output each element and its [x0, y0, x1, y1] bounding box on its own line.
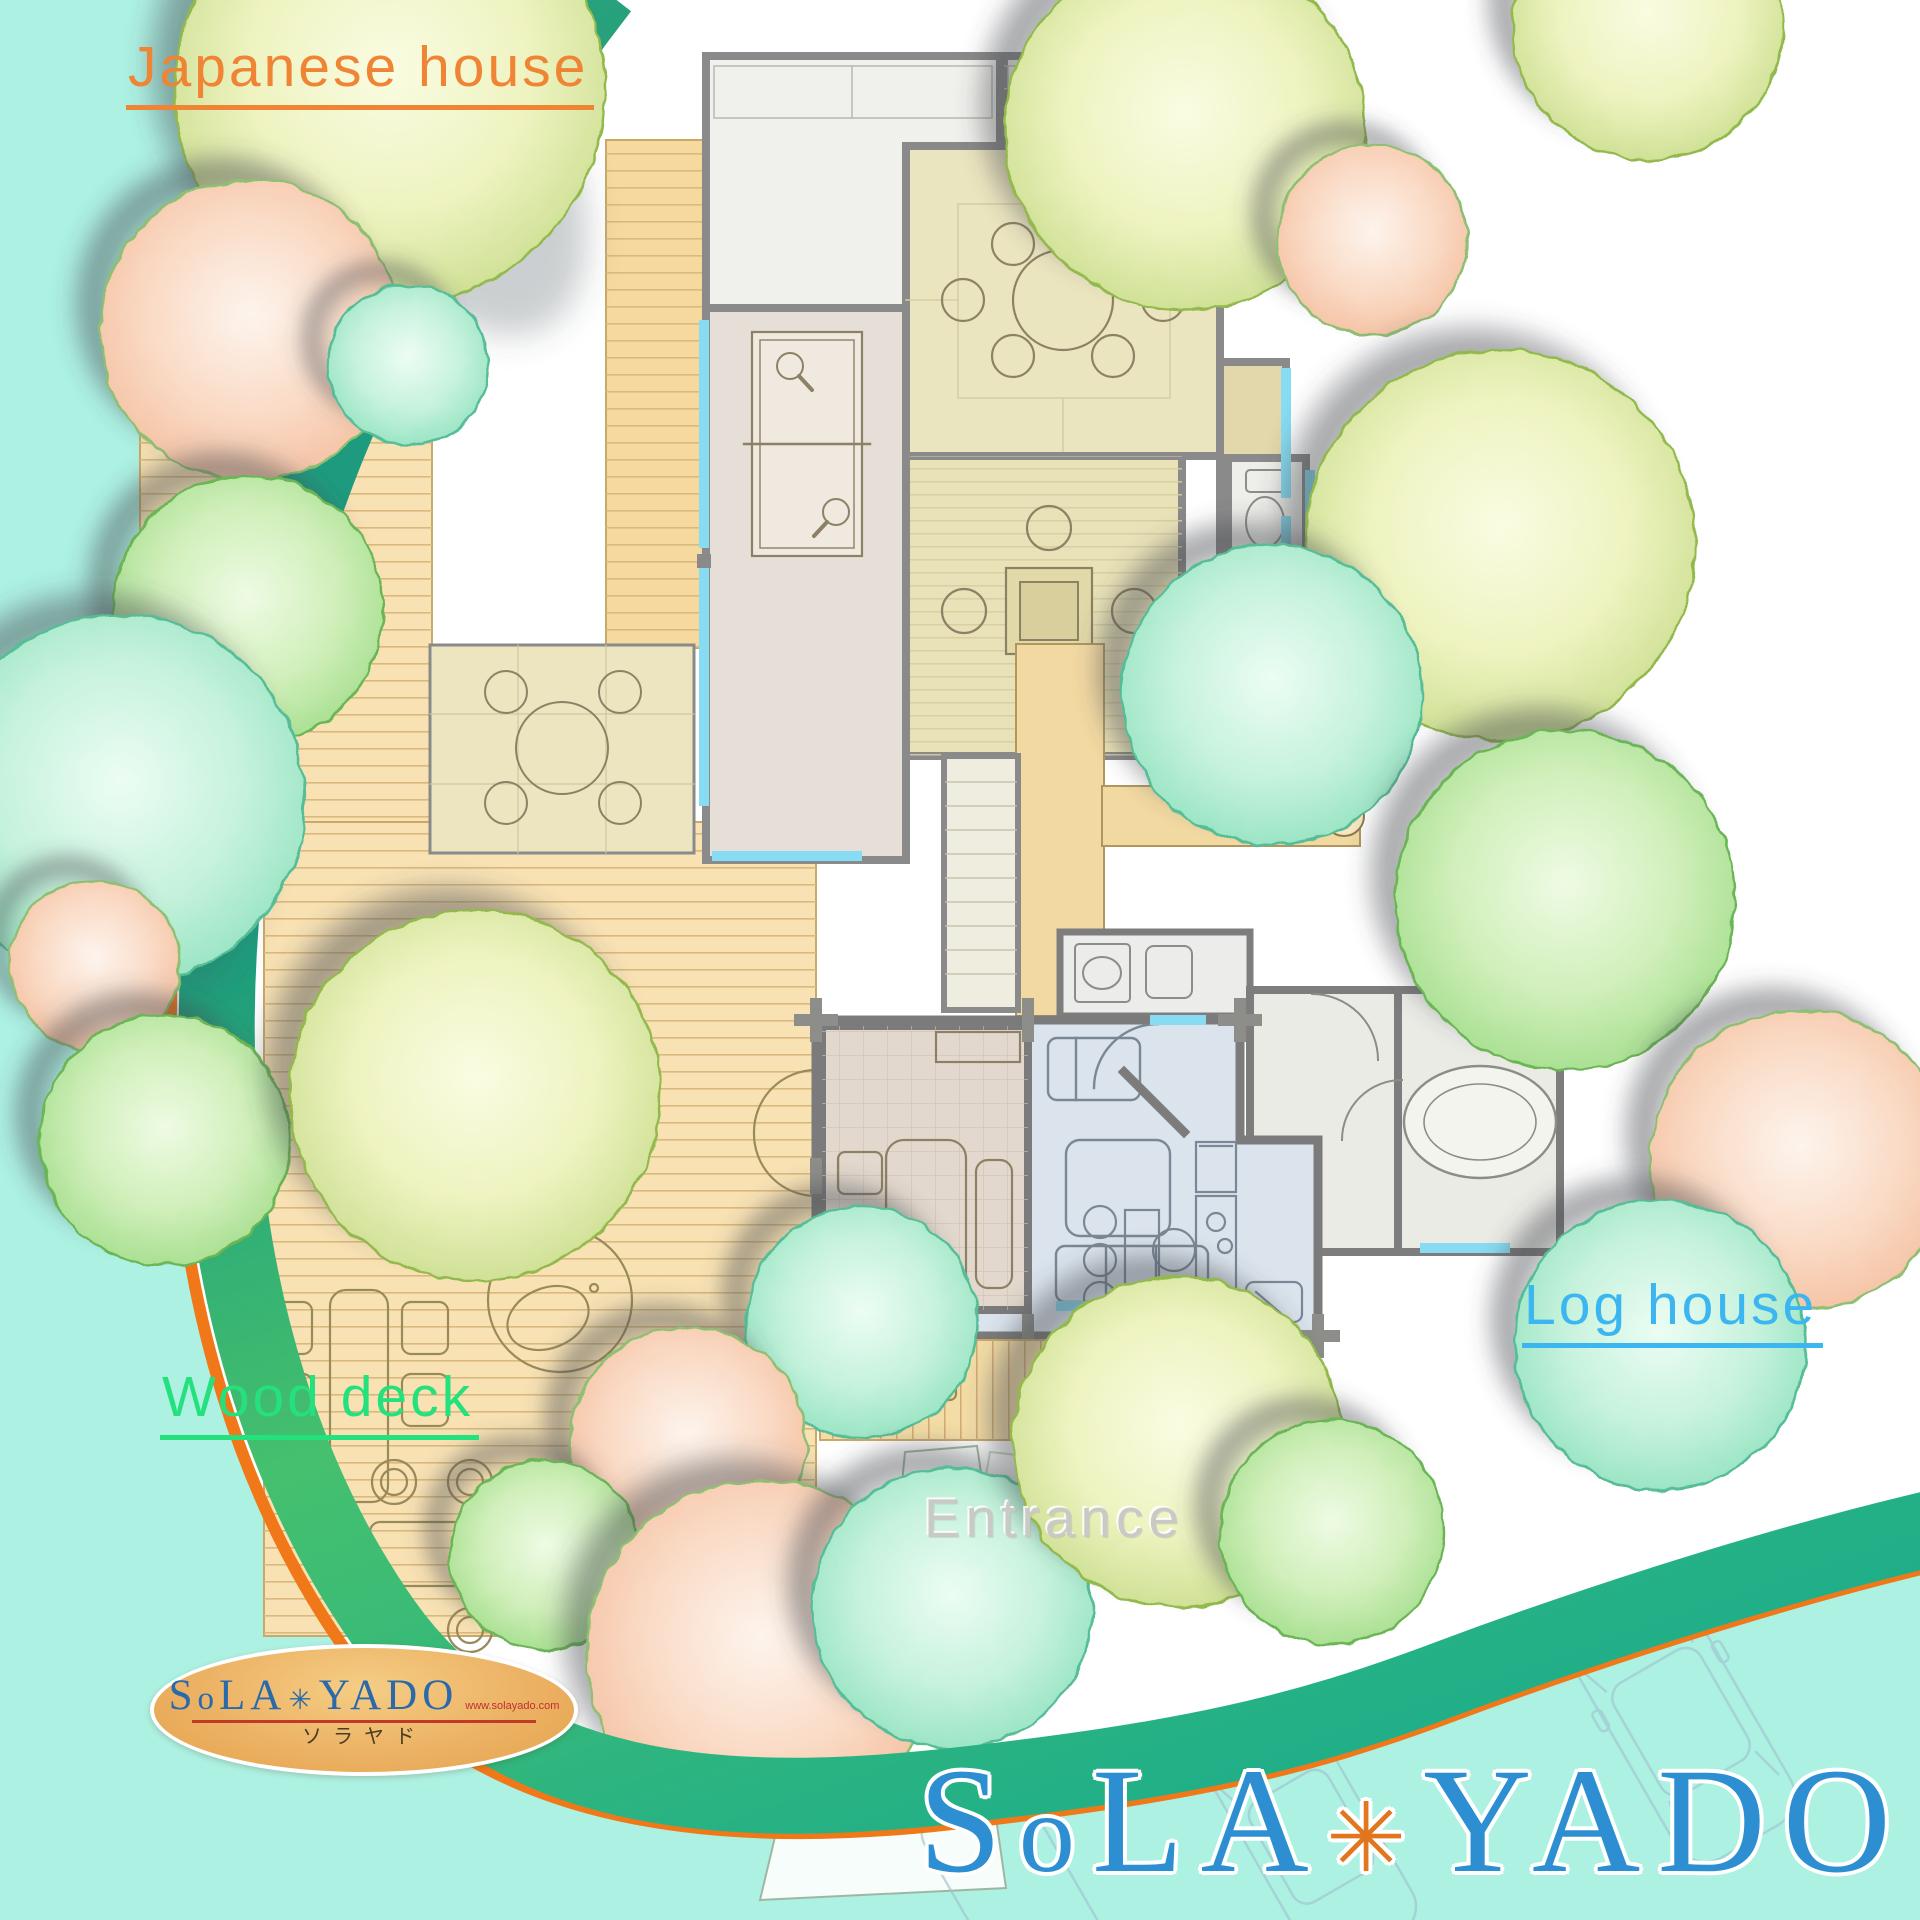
tree-te: [328, 285, 488, 445]
site-plan-illustration: [0, 0, 1920, 1920]
logo-underline: [192, 1720, 536, 1723]
label-japanese-house: Japanese house: [126, 34, 594, 110]
logo-url: www.solayado.com: [465, 1701, 559, 1712]
logo-kana: ソラヤド: [302, 1727, 426, 1747]
title-asterisk-icon: ✳: [1326, 1791, 1423, 1887]
tree-pe: [1277, 145, 1467, 335]
label-log-house: Log house: [1522, 1272, 1823, 1348]
solayado-logo-badge: SoLA✳YADO www.solayado.com ソラヤド: [150, 1644, 578, 1776]
tree-gr: [1220, 1420, 1444, 1644]
page-title-wordmark: SoLA✳YADO: [918, 1746, 1908, 1896]
table-tennis-table: [744, 332, 870, 556]
logo-text: S: [169, 1674, 198, 1717]
deck-tea-area: [430, 645, 694, 853]
site-plan-page: Japanese house Wood deck Log house Entra…: [0, 0, 1920, 1920]
tree-gr: [40, 1015, 290, 1265]
label-entrance: Entrance: [924, 1486, 1184, 1550]
logo-wordmark: SoLA✳YADO www.solayado.com: [169, 1674, 560, 1717]
tree-yg: [290, 910, 660, 1280]
logo-asterisk-icon: ✳: [286, 1687, 318, 1715]
label-wood-deck: Wood deck: [160, 1364, 479, 1440]
